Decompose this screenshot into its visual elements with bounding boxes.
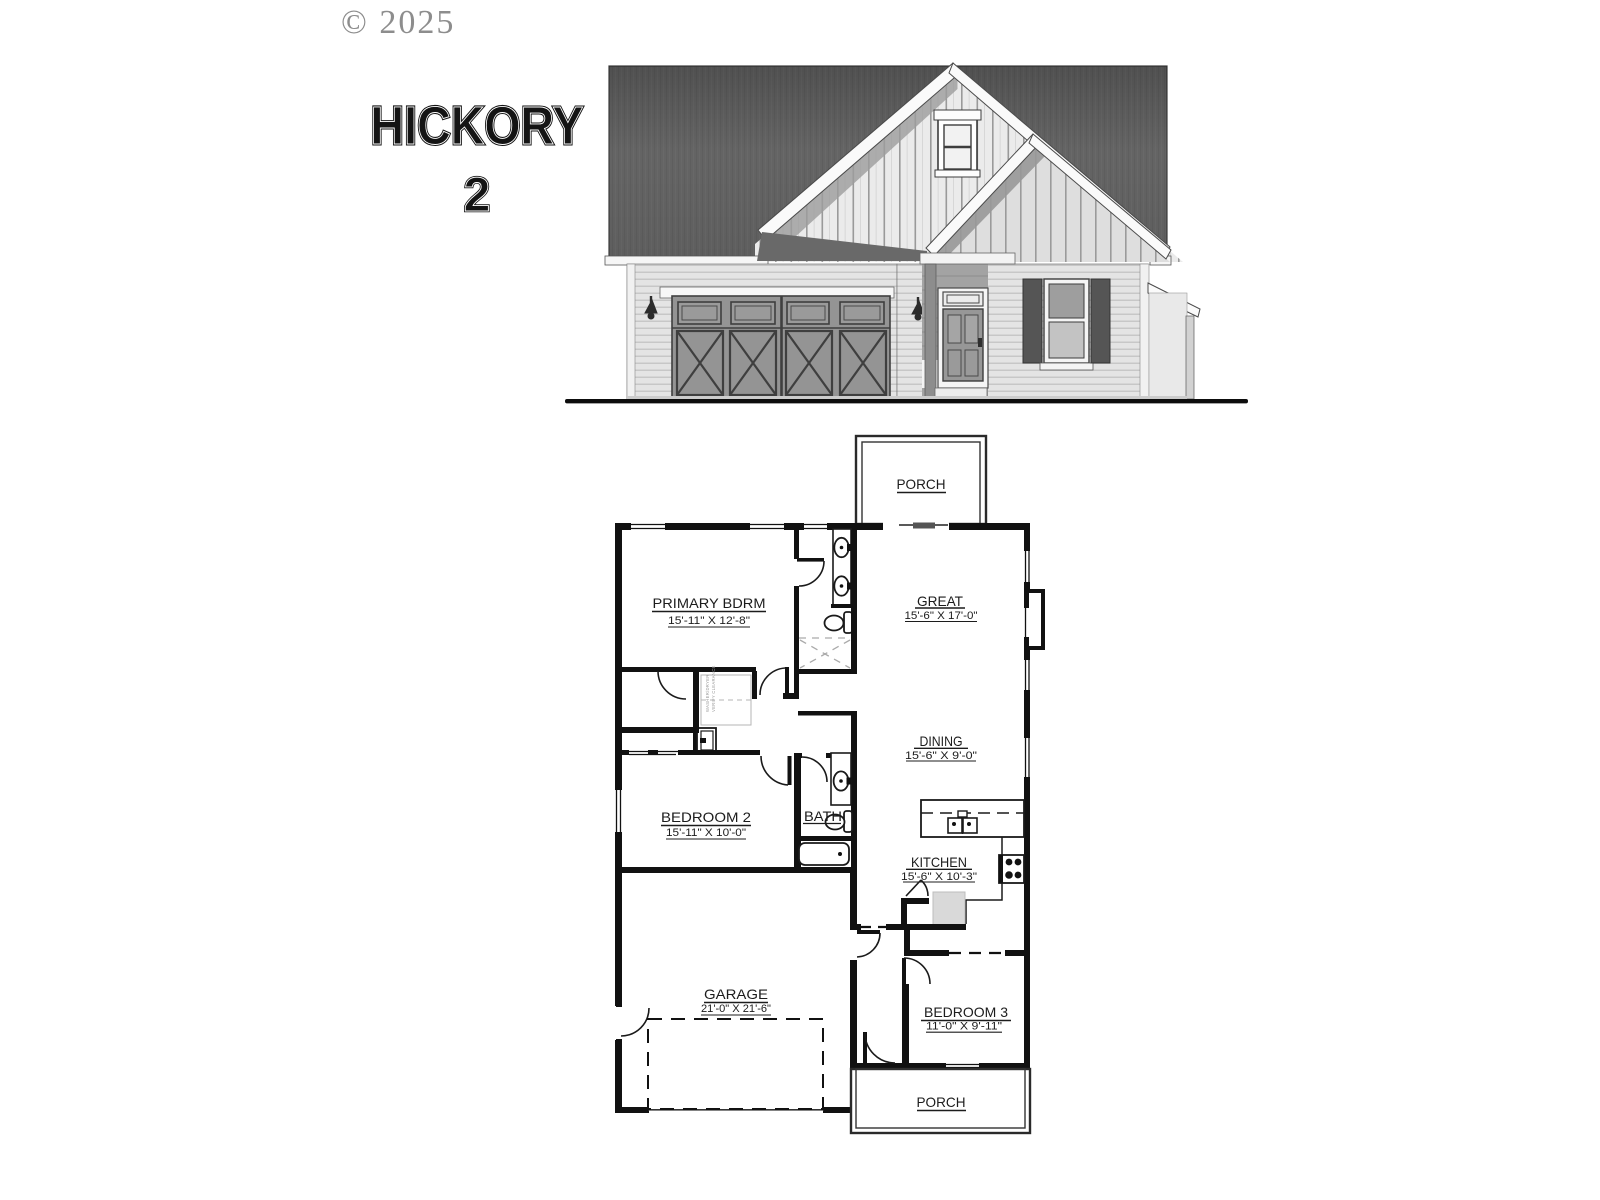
svg-text:VERIFY CLEARANCE: VERIFY CLEARANCE (711, 665, 716, 712)
svg-text:GARAGE: GARAGE (704, 986, 768, 1002)
svg-text:PORCH: PORCH (917, 1094, 966, 1110)
svg-text:HICKORY: HICKORY (371, 96, 584, 156)
svg-text:15'-11" X 12'-8": 15'-11" X 12'-8" (668, 615, 750, 627)
svg-text:2: 2 (464, 169, 491, 222)
svg-text:KITCHEN: KITCHEN (911, 854, 967, 870)
svg-text:BATH: BATH (804, 809, 842, 824)
svg-text:PORCH: PORCH (897, 476, 946, 492)
svg-text:15'-6" X 10'-3": 15'-6" X 10'-3" (901, 871, 977, 883)
svg-text:BEDROOM 3: BEDROOM 3 (924, 1004, 1008, 1020)
svg-text:© 2025: © 2025 (341, 4, 455, 41)
svg-text:BEDROOM 2: BEDROOM 2 (661, 809, 751, 825)
svg-text:PRIMARY BDRM: PRIMARY BDRM (653, 595, 766, 611)
svg-text:15'-11" X 10'-0": 15'-11" X 10'-0" (666, 827, 746, 839)
svg-text:WASHER/DRYER: WASHER/DRYER (705, 674, 710, 712)
svg-text:DINING: DINING (920, 733, 963, 749)
svg-text:15'-6" X 9'-0": 15'-6" X 9'-0" (905, 750, 977, 762)
svg-text:GREAT: GREAT (917, 593, 963, 609)
svg-text:11'-0" X 9'-11": 11'-0" X 9'-11" (926, 1021, 1002, 1033)
svg-text:21'-0" X 21'-6": 21'-0" X 21'-6" (701, 1003, 771, 1015)
svg-text:15'-6" X 17'-0": 15'-6" X 17'-0" (905, 610, 978, 622)
